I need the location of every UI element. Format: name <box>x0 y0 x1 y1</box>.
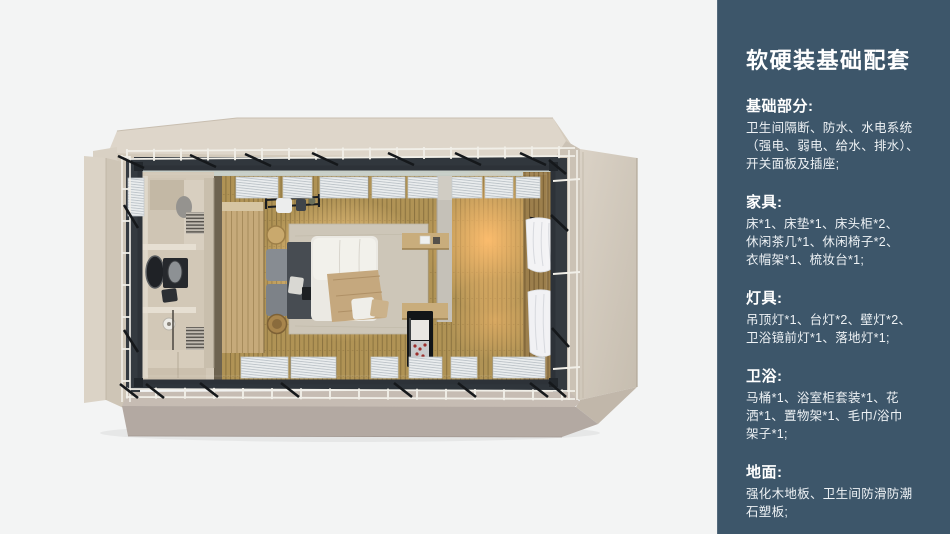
section-furniture: 家具: 床*1、床垫*1、床头柜*2、 休闲茶几*1、休闲椅子*2、 衣帽架*1… <box>746 193 928 269</box>
sidebar-title: 软硬装基础配套 <box>746 46 928 76</box>
floor-shadow-strip <box>214 176 222 380</box>
shelf-item-white <box>420 236 430 244</box>
room-interior <box>140 168 558 382</box>
section-heading: 家具: <box>746 193 928 213</box>
roller-blinds-bottom <box>241 357 545 378</box>
hanging-garment-white <box>276 198 292 213</box>
pillow-left-2 <box>266 284 289 316</box>
section-heading: 卫浴: <box>746 367 928 387</box>
section-body: 强化木地板、卫生间防滑防潮 石塑板; <box>746 485 928 521</box>
slide-page: 软硬装基础配套 基础部分: 卫生间隔断、防水、水电系统 （强电、弱电、给水、排水… <box>0 0 950 534</box>
section-body: 马桶*1、浴室柜套装*1、花 洒*1、置物架*1、毛巾/浴巾 架子*1; <box>746 389 928 443</box>
floorplan-render <box>0 0 717 534</box>
wardrobe <box>222 202 264 353</box>
rack-plant <box>309 198 316 205</box>
sink-basin <box>168 261 182 283</box>
section-flooring: 地面: 强化木地板、卫生间防滑防潮 石塑板; <box>746 463 928 521</box>
vanity-stool <box>161 288 178 303</box>
foot-pillow-tan <box>370 299 389 318</box>
section-body: 床*1、床垫*1、床头柜*2、 休闲茶几*1、休闲椅子*2、 衣帽架*1、梳妆台… <box>746 215 928 269</box>
vanity-mirror <box>146 256 164 288</box>
section-heading: 地面: <box>746 463 928 483</box>
pillow-left-1 <box>266 249 289 281</box>
shelf-edge-1 <box>142 244 196 250</box>
section-body: 吊顶灯*1、台灯*2、壁灯*2、 卫浴镜前灯*1、落地灯*1; <box>746 311 928 347</box>
storage-basket-top <box>267 226 285 244</box>
headboard-cushion <box>288 276 304 295</box>
bathroom-partition <box>204 178 214 368</box>
bathroom <box>142 172 214 380</box>
section-lighting: 灯具: 吊顶灯*1、台灯*2、壁灯*2、 卫浴镜前灯*1、落地灯*1; <box>746 289 928 347</box>
section-heading: 基础部分: <box>746 97 928 117</box>
info-sidebar: 软硬装基础配套 基础部分: 卫生间隔断、防水、水电系统 （强电、弱电、给水、排水… <box>717 0 950 534</box>
hanging-garment-dark <box>296 199 306 211</box>
section-basics: 基础部分: 卫生间隔断、防水、水电系统 （强电、弱电、给水、排水）、 开关面板及… <box>746 97 928 173</box>
section-body: 卫生间隔断、防水、水电系统 （强电、弱电、给水、排水）、 开关面板及插座; <box>746 119 928 173</box>
shelf-edge-2 <box>142 307 196 313</box>
floorplan-svg <box>0 0 717 534</box>
section-heading: 灯具: <box>746 289 928 309</box>
shelf-item-dark <box>433 237 440 244</box>
section-bathroom: 卫浴: 马桶*1、浴室柜套装*1、花 洒*1、置物架*1、毛巾/浴巾 架子*1; <box>746 367 928 443</box>
